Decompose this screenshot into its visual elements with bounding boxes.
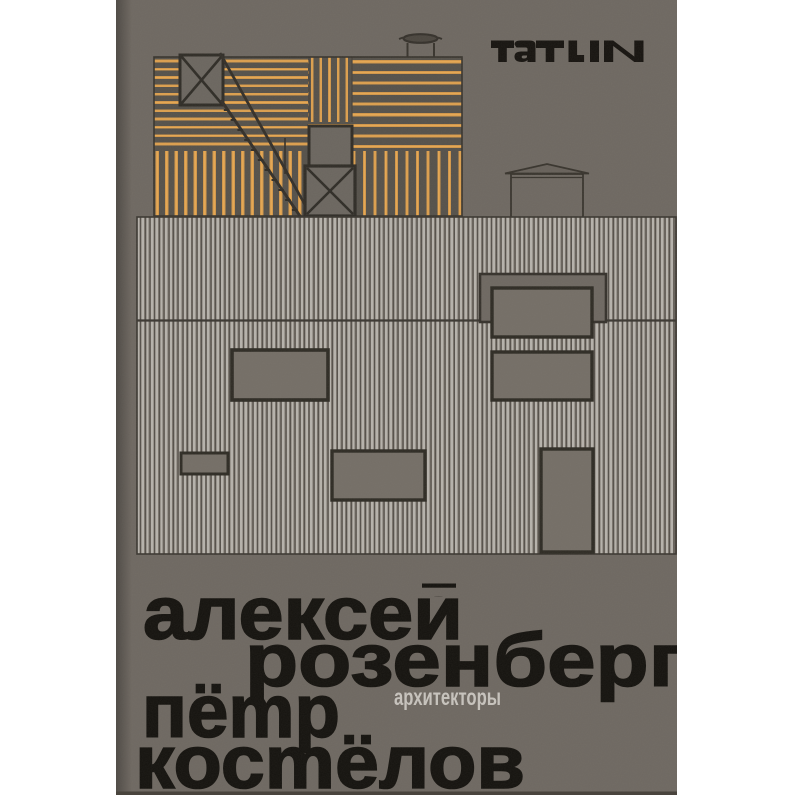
svg-text:косmёлов: косmёлов bbox=[135, 720, 525, 795]
svg-text:архитекторы: архитекторы bbox=[394, 684, 501, 710]
